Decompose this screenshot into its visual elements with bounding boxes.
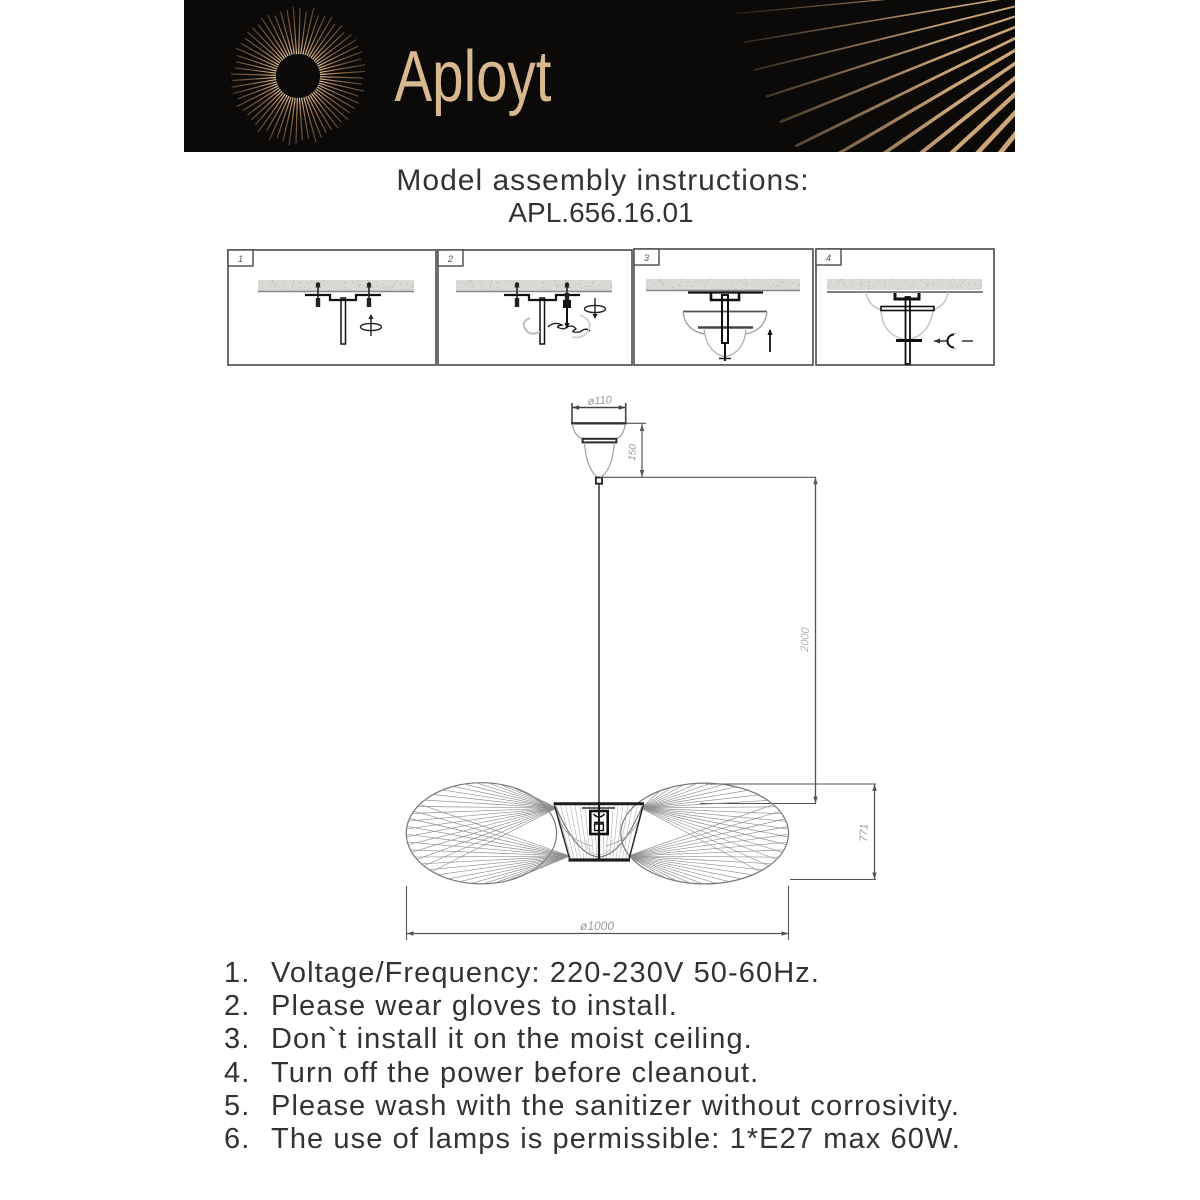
svg-text:2: 2 [447, 254, 453, 264]
svg-text:ø1000: ø1000 [580, 919, 614, 933]
svg-text:771: 771 [858, 823, 871, 842]
svg-text:Aployt: Aployt [395, 37, 552, 117]
svg-text:ø110: ø110 [587, 394, 613, 408]
svg-text:2000: 2000 [799, 626, 812, 653]
svg-text:3: 3 [644, 253, 649, 263]
svg-text:1: 1 [238, 254, 243, 264]
svg-text:150: 150 [627, 443, 639, 461]
svg-text:4: 4 [826, 253, 831, 263]
